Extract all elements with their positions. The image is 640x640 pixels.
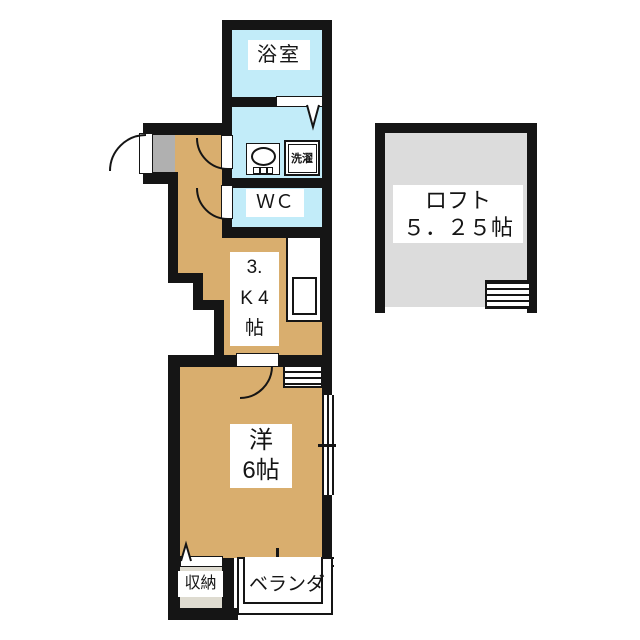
western-room-label: 洋 6帖 [230, 424, 292, 488]
western-room-label-line2: 6帖 [242, 456, 279, 486]
storage-opening [180, 556, 223, 567]
side-window-tick [318, 444, 336, 447]
wall-segment [322, 20, 332, 395]
wc-label-text: ＷＣ [256, 191, 294, 215]
kitchen-label-line2: K 4 [240, 284, 269, 314]
floor-plan: 洗濯 浴室 ＷＣ 3. K 4 帖 洋 6帖 ロフト ５．２５帖 収納 ベランダ [0, 0, 640, 640]
kitchen-label-line1: 3. [247, 253, 263, 283]
wall-segment [222, 178, 332, 188]
washing-machine-label: 洗濯 [288, 144, 317, 173]
washroom-door-opening [221, 135, 233, 169]
wall-segment [322, 495, 332, 558]
loft-wall-left [375, 123, 385, 313]
genkan-floor [153, 135, 175, 172]
bathroom-label-text: 浴室 [257, 43, 301, 68]
wall-segment [143, 123, 232, 135]
kitchen-label-line3: 帖 [245, 314, 264, 344]
hallway-floor [175, 135, 222, 172]
wall-segment [232, 97, 277, 107]
loft-label: ロフト ５．２５帖 [393, 185, 523, 243]
room-ladder-icon [283, 363, 323, 388]
washing-machine-icon: 洗濯 [284, 140, 320, 176]
balcony-label: ベランダ [242, 571, 332, 599]
storage-label-text: 収納 [184, 574, 216, 594]
wc-label: ＷＣ [246, 189, 304, 217]
wall-segment [168, 172, 178, 283]
wc-door-opening [221, 185, 233, 219]
washbasin-bowl-icon [251, 147, 276, 166]
bathroom-door-opening [276, 96, 323, 107]
wall-segment [222, 558, 234, 612]
bathroom-label: 浴室 [248, 40, 310, 70]
loft-label-line2: ５．２５帖 [403, 214, 513, 242]
loft-ladder-icon [485, 280, 531, 309]
wall-segment [222, 20, 232, 137]
loft-label-line1: ロフト [425, 187, 491, 215]
kitchen-label: 3. K 4 帖 [230, 252, 279, 346]
hallway-floor-lower [178, 172, 222, 238]
washbasin-base-divider [266, 167, 268, 174]
entrance-door-leaf [139, 133, 153, 174]
loft-wall-top [375, 123, 537, 133]
balcony-label-text: ベランダ [249, 573, 325, 597]
western-room-label-line1: 洋 [249, 426, 273, 456]
washbasin-base-divider [259, 167, 261, 174]
washbasin-base-icon [253, 167, 273, 174]
room-door-opening [236, 353, 279, 367]
storage-label: 収納 [178, 571, 223, 597]
wall-segment [222, 20, 332, 30]
kitchen-sink-icon [292, 277, 317, 315]
